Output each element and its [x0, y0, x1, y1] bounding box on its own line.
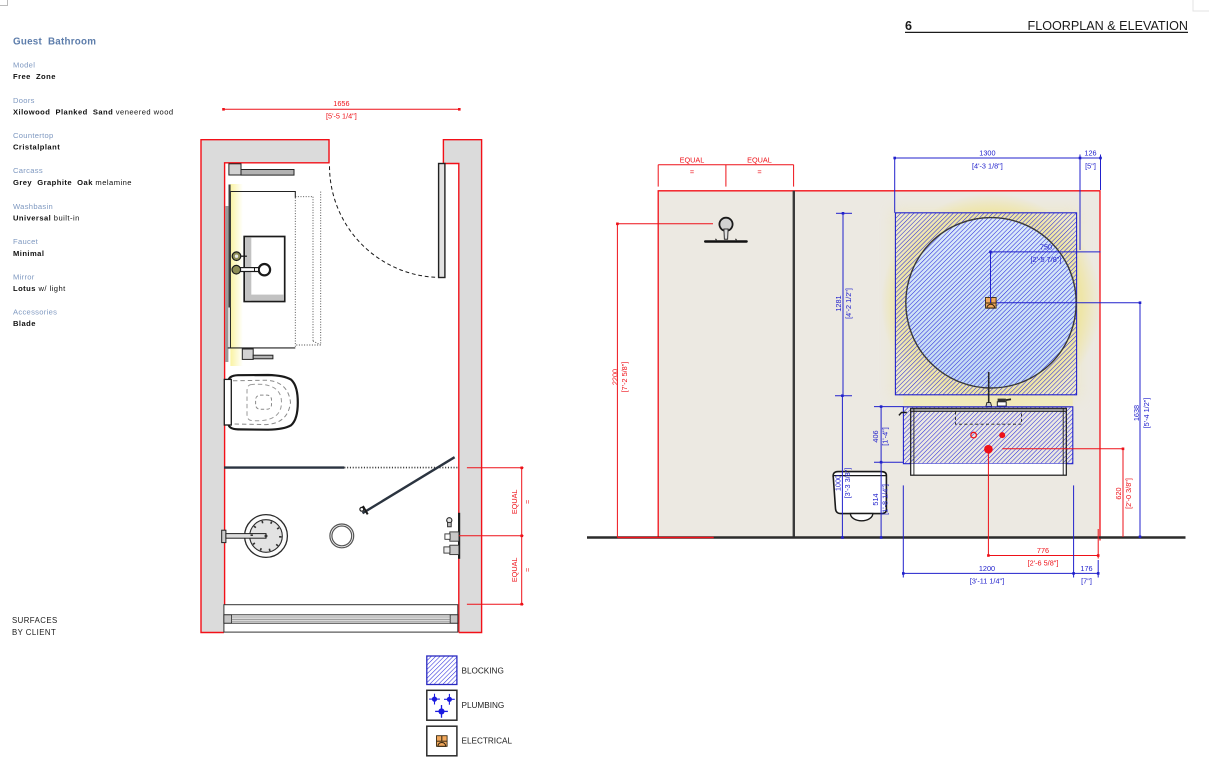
- svg-text:514: 514: [871, 493, 880, 505]
- svg-text:1300: 1300: [979, 148, 995, 157]
- svg-text:=: =: [690, 167, 694, 176]
- svg-text:Universal built-in: Universal built-in: [13, 214, 80, 223]
- svg-text:ELECTRICAL: ELECTRICAL: [462, 737, 513, 746]
- svg-text:=: =: [523, 568, 532, 572]
- svg-text:[5"]: [5"]: [1085, 162, 1096, 171]
- svg-text:[2'-0 3/8"]: [2'-0 3/8"]: [1124, 478, 1133, 509]
- svg-text:[7"]: [7"]: [1081, 577, 1092, 586]
- svg-text:Grey Graphite Oak melamine: Grey Graphite Oak melamine: [13, 178, 132, 187]
- svg-text:406: 406: [871, 430, 880, 442]
- svg-text:EQUAL: EQUAL: [680, 155, 705, 164]
- svg-text:Carcass: Carcass: [13, 166, 43, 175]
- svg-text:Minimal: Minimal: [13, 249, 44, 258]
- svg-text:Countertop: Countertop: [13, 131, 54, 140]
- svg-text:[2'-5 7/8"]: [2'-5 7/8"]: [1031, 255, 1062, 264]
- svg-text:1281: 1281: [834, 295, 843, 311]
- svg-text:BLOCKING: BLOCKING: [462, 666, 504, 675]
- svg-text:[3'-3 3/8"]: [3'-3 3/8"]: [843, 468, 852, 499]
- svg-text:[5'-4 1/2"]: [5'-4 1/2"]: [1142, 398, 1151, 429]
- svg-text:Washbasin: Washbasin: [13, 202, 53, 211]
- svg-text:2200: 2200: [611, 369, 620, 385]
- svg-text:126: 126: [1084, 148, 1096, 157]
- svg-text:[1'-4"]: [1'-4"]: [881, 427, 890, 446]
- svg-text:[3'-11 1/4"]: [3'-11 1/4"]: [970, 577, 1004, 586]
- svg-text:EQUAL: EQUAL: [747, 155, 772, 164]
- svg-text:[2'-6 5/8"]: [2'-6 5/8"]: [1028, 558, 1059, 567]
- svg-text:Cristalplant: Cristalplant: [13, 143, 60, 152]
- svg-text:620: 620: [1114, 487, 1123, 499]
- svg-text:Blade: Blade: [13, 319, 36, 328]
- svg-text:[7'-2 5/8"]: [7'-2 5/8"]: [620, 362, 629, 393]
- svg-text:[1'-8 1/4"]: [1'-8 1/4"]: [881, 484, 890, 515]
- svg-text:750: 750: [1040, 243, 1052, 252]
- svg-text:=: =: [523, 500, 532, 504]
- svg-text:1200: 1200: [979, 564, 995, 573]
- svg-text:[4'-3 1/8"]: [4'-3 1/8"]: [972, 162, 1003, 171]
- svg-text:Faucet: Faucet: [13, 237, 39, 246]
- svg-text:Lotus w/ light: Lotus w/ light: [13, 284, 66, 293]
- svg-text:EQUAL: EQUAL: [510, 489, 519, 514]
- svg-text:Doors: Doors: [13, 96, 35, 105]
- svg-text:EQUAL: EQUAL: [510, 557, 519, 582]
- svg-text:=: =: [757, 167, 761, 176]
- svg-text:Free Zone: Free Zone: [13, 72, 56, 81]
- svg-text:[5'-5 1/4"]: [5'-5 1/4"]: [326, 112, 357, 121]
- svg-text:Guest Bathroom: Guest Bathroom: [13, 37, 96, 48]
- svg-text:1638: 1638: [1132, 405, 1141, 421]
- svg-text:Accessories: Accessories: [13, 308, 57, 317]
- svg-text:1656: 1656: [333, 99, 349, 108]
- svg-text:6: 6: [905, 19, 912, 33]
- svg-text:[4'-2 1/2"]: [4'-2 1/2"]: [844, 288, 853, 319]
- svg-text:776: 776: [1037, 546, 1049, 555]
- svg-text:Mirror: Mirror: [13, 272, 35, 281]
- svg-text:Xilowood Planked Sand veneer: Xilowood Planked Sand veneered wood: [13, 107, 174, 116]
- svg-text:Model: Model: [13, 61, 35, 70]
- svg-text:1000: 1000: [833, 475, 842, 491]
- svg-text:PLUMBING: PLUMBING: [462, 701, 505, 710]
- svg-text:FLOORPLAN & ELEVATION: FLOORPLAN & ELEVATION: [1028, 19, 1189, 33]
- svg-text:SURFACES: SURFACES: [12, 616, 58, 625]
- svg-text:176: 176: [1080, 564, 1092, 573]
- svg-text:BY CLIENT: BY CLIENT: [12, 628, 56, 637]
